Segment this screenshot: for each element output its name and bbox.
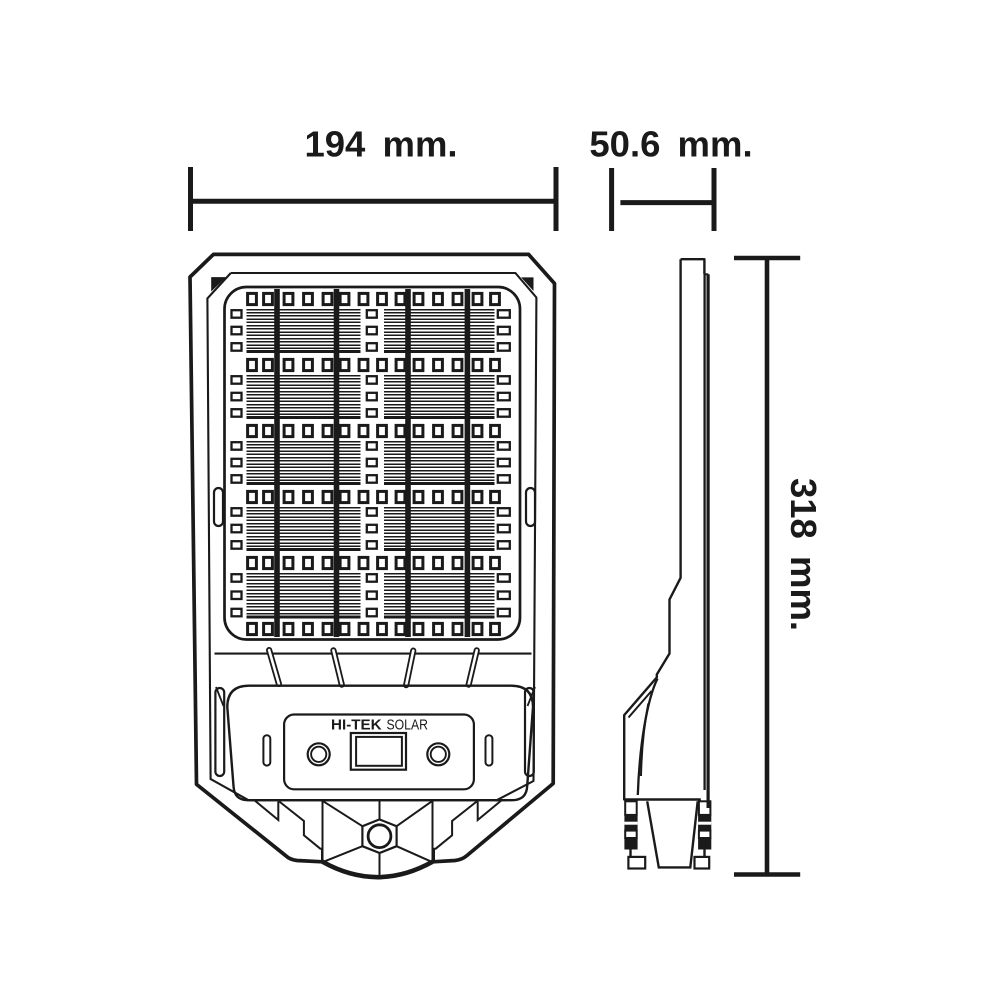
- svg-text:194 mm.: 194 mm.: [304, 124, 457, 165]
- svg-text:50.6 mm.: 50.6 mm.: [589, 124, 752, 165]
- svg-text:HI-TEK: HI-TEK: [331, 716, 382, 733]
- svg-text:SOLAR: SOLAR: [387, 716, 429, 733]
- svg-text:318 mm.: 318 mm.: [783, 478, 824, 631]
